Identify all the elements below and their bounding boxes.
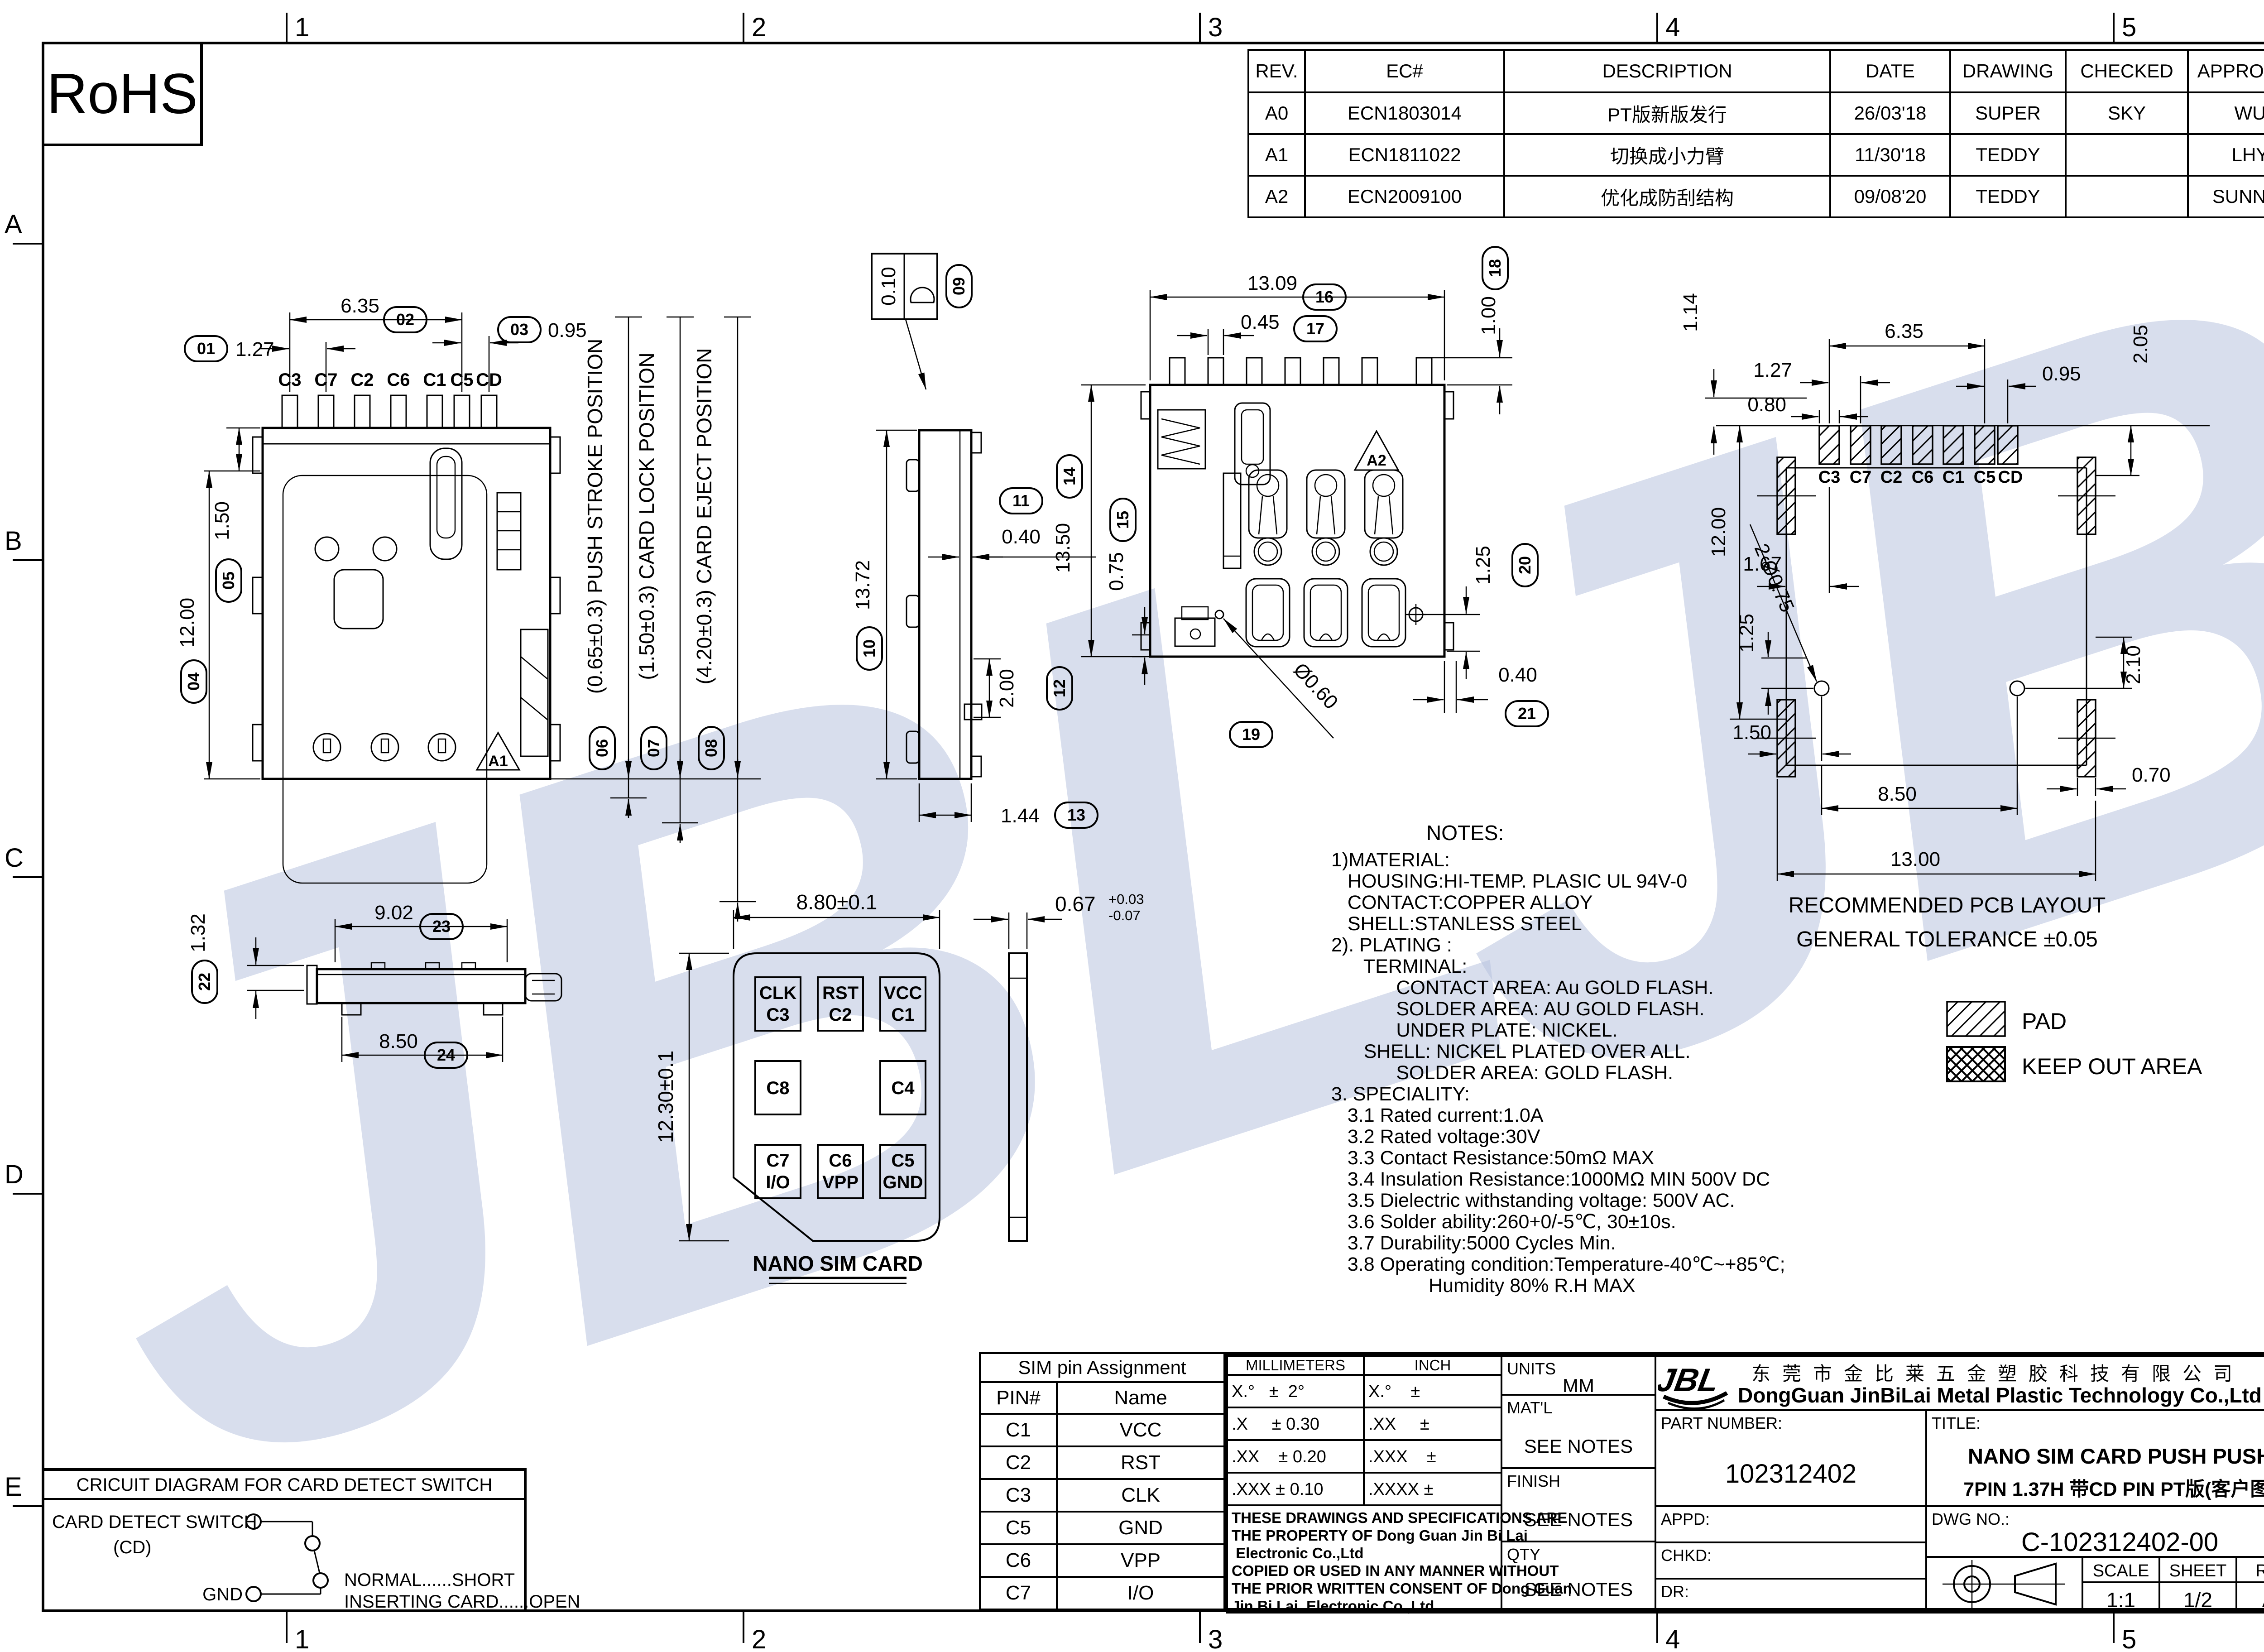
dim-17: 0.45 17 [1177,311,1337,355]
svg-text:RST: RST [822,983,859,1003]
sheet-header: SHEET [2158,1556,2237,1583]
svg-text:09: 09 [950,277,968,295]
sim-pin-table: SIM pin Assignment PIN#Name C1VCC C2RST … [979,1352,1225,1610]
svg-text:C2: C2 [350,370,374,390]
svg-text:VPP: VPP [822,1172,859,1192]
svg-text:C5: C5 [891,1151,914,1171]
svg-text:4: 4 [1665,13,1680,42]
company-cn: 东莞市金比莱五金塑胶科技有限公司 [1751,1359,2244,1386]
units-cell: UNITS MM [1501,1355,1656,1396]
rev-header: APPROVED [2188,50,2264,92]
dim-09: 0.10 09 [872,254,972,389]
svg-text:12.30±0.1: 12.30±0.1 [654,1051,677,1143]
svg-text:17: 17 [1306,319,1324,338]
pin-row: C2RST [980,1446,1224,1479]
rohs-badge: RoHS [43,43,201,145]
svg-text:A2: A2 [1367,452,1386,469]
scale-value: 1:1 [2082,1581,2160,1614]
qty-cell: QTY SEE NOTES [1501,1541,1656,1614]
svg-text:CLK: CLK [759,983,796,1003]
svg-text:8.50: 8.50 [1878,783,1917,805]
svg-text:C4: C4 [891,1078,915,1098]
svg-text:C1: C1 [1943,468,1965,487]
svg-text:C6: C6 [387,370,410,390]
tol-header-inch: INCH [1363,1355,1502,1376]
part-number-cell: PART NUMBER: 102312402 [1655,1409,1927,1507]
svg-text:B: B [5,526,22,556]
svg-text:06: 06 [593,739,611,757]
svg-text:C8: C8 [766,1078,789,1098]
svg-text:I/O: I/O [766,1172,790,1192]
svg-text:1.44: 1.44 [1001,805,1040,827]
svg-text:6.35: 6.35 [1885,320,1923,342]
svg-text:3: 3 [1208,13,1223,42]
svg-text:D: D [5,1160,24,1189]
rev-header: DRAWING [1950,50,2066,92]
svg-text:5: 5 [2122,1625,2136,1652]
pin-row: C6VPP [980,1544,1224,1577]
svg-text:18: 18 [1486,259,1504,277]
svg-text:08: 08 [702,739,720,757]
company-en: DongGuan JinBiLai Metal Plastic Technolo… [1738,1383,2262,1407]
rev-header: CHECKED [2066,50,2188,92]
rev-header: DATE [1830,50,1950,92]
svg-text:11: 11 [1012,491,1030,510]
svg-text:1: 1 [295,1625,309,1652]
svg-text:13.09: 13.09 [1247,272,1297,294]
title-cell: TITLE: NANO SIM CARD PUSH PUSH 7PIN 1.37… [1925,1409,2264,1507]
svg-text:13: 13 [1067,806,1085,824]
svg-text:C7: C7 [766,1151,789,1171]
svg-text:C2: C2 [1880,468,1903,487]
svg-text:C1: C1 [423,370,446,390]
svg-text:12: 12 [1050,679,1069,697]
jbl-logo: JBL [1658,1358,1733,1410]
svg-text:1.25: 1.25 [1472,546,1494,585]
dr-cell: DR: [1655,1578,1927,1614]
projection-cell [1925,1556,2083,1614]
svg-text:8.80±0.1: 8.80±0.1 [796,890,878,914]
svg-text:C2: C2 [829,1005,852,1025]
legend-keepout-label: KEEP OUT AREA [2022,1054,2202,1079]
svg-text:0.10: 0.10 [878,267,900,306]
zone-markers-top: 1 2 3 4 5 [287,13,2136,43]
svg-text:CD: CD [1998,468,2023,487]
svg-text:12.00: 12.00 [176,598,198,648]
pcb-tolerance: GENERAL TOLERANCE ±0.05 [1796,927,2098,951]
svg-text:JBL: JBL [1658,1362,1722,1398]
company-band: JBL 东莞市金比莱五金塑胶科技有限公司 DongGuan JinBiLai M… [1655,1355,2264,1411]
rev-header: DESCRIPTION [1504,50,1830,92]
svg-text:2.10: 2.10 [2122,645,2144,684]
svg-text:1.27: 1.27 [1753,359,1792,381]
rev-value: A2 [2235,1581,2264,1614]
svg-text:C7: C7 [1850,468,1872,487]
svg-text:12.00: 12.00 [1708,507,1730,557]
svg-text:4: 4 [1665,1625,1680,1652]
pin-table-title: SIM pin Assignment [980,1353,1224,1382]
tol-header-mm: MILLIMETERS [1226,1355,1365,1376]
svg-text:INSERTING CARD......OPEN: INSERTING CARD......OPEN [344,1592,580,1612]
svg-text:5: 5 [2122,13,2136,42]
svg-text:(0.65±0.3) PUSH STROKE POSITIO: (0.65±0.3) PUSH STROKE POSITION [583,339,607,694]
pin-row: C1VCC [980,1414,1224,1446]
svg-text:07: 07 [644,739,663,757]
rev-header-cell: REV. [2235,1556,2264,1583]
svg-text:1.27: 1.27 [235,338,274,360]
svg-text:+0.03: +0.03 [1108,891,1144,907]
svg-text:C3: C3 [1818,468,1841,487]
revision-table: REV. EC# DESCRIPTION DATE DRAWING CHECKE… [1247,49,2264,218]
svg-text:13.50: 13.50 [1052,523,1074,573]
svg-text:23: 23 [432,917,451,936]
nano-sim-label: NANO SIM CARD [753,1252,923,1275]
svg-text:03: 03 [510,320,528,339]
pin-row: C5GND [980,1512,1224,1544]
title-block: MILLIMETERS INCH X.° ± 2° X.° ± .X ± 0.3… [1223,1352,2264,1611]
svg-text:0.75: 0.75 [1105,552,1127,591]
svg-text:1.14: 1.14 [1679,293,1702,332]
svg-text:21: 21 [1518,704,1536,723]
svg-text:C: C [5,843,24,873]
svg-text:A: A [5,210,22,239]
chkd-cell: CHKD: [1655,1542,1927,1580]
svg-text:CARD DETECT SWITCH: CARD DETECT SWITCH [52,1512,257,1532]
svg-text:05: 05 [219,571,238,590]
svg-text:3: 3 [1208,1625,1223,1652]
rev-row: A2ECN2009100优化成防刮结构09/08'20TEDDYSUNNLY [1248,176,2264,217]
svg-text:19: 19 [1242,725,1260,744]
scale-header: SCALE [2082,1556,2160,1583]
svg-text:-0.07: -0.07 [1108,908,1141,923]
rohs-label: RoHS [47,62,197,125]
sheet-value: 1/2 [2158,1581,2237,1614]
svg-text:2: 2 [752,13,766,42]
dwg-cell: DWG NO.: C-102312402-00 [1925,1505,2264,1558]
svg-text:9.02: 9.02 [374,902,413,924]
notes-title: NOTES: [1426,821,1785,845]
svg-text:0.95: 0.95 [548,319,587,341]
svg-text:0.45: 0.45 [1241,311,1280,333]
svg-text:02: 02 [396,310,414,329]
svg-text:22: 22 [195,973,214,991]
pin-row: C3CLK [980,1479,1224,1512]
svg-text:1.00: 1.00 [1477,296,1500,335]
zone-markers-bottom: 1 2 3 4 5 [287,1611,2136,1652]
pcb-layout-title: RECOMMENDED PCB LAYOUT [1789,893,2106,917]
svg-text:13.72: 13.72 [852,560,874,610]
svg-text:C1: C1 [891,1005,914,1025]
svg-text:0.67: 0.67 [1055,892,1096,916]
svg-text:(CD): (CD) [113,1537,151,1557]
drawing-sheet: JBL JBL 1 2 3 4 5 1 2 3 4 5 A B C D E A … [0,0,2264,1652]
rev-row: A1ECN1811022切换成小力臂11/30'18TEDDYLHY [1248,134,2264,176]
notes-body: 1)MATERIAL: HOUSING:HI-TEMP. PLASIC UL 9… [1331,850,1785,1297]
svg-text:C6: C6 [829,1151,852,1171]
svg-text:E: E [5,1472,22,1502]
svg-text:1.50: 1.50 [1732,721,1771,744]
svg-text:04: 04 [184,672,203,691]
svg-text:01: 01 [197,339,215,358]
svg-text:15: 15 [1113,511,1132,529]
svg-text:2.05: 2.05 [2130,325,2152,364]
svg-text:14: 14 [1060,467,1079,485]
svg-text:(4.20±0.3) CARD EJECT POSITION: (4.20±0.3) CARD EJECT POSITION [692,348,716,685]
svg-text:10: 10 [860,639,878,658]
rev-row: A0ECN1803014PT版新版发行26/03'18SUPERSKYWU [1248,92,2264,134]
svg-text:0.80: 0.80 [1747,394,1786,416]
svg-text:1.32: 1.32 [187,913,209,952]
pin-row: C7I/O [980,1577,1224,1609]
svg-text:13.00: 13.00 [1890,848,1940,870]
front-pins: C3 C7 C2 C6 C1 C5 CD [278,370,502,428]
rev-header: EC# [1305,50,1504,92]
svg-text:0.40: 0.40 [1002,526,1041,548]
svg-text:0.40: 0.40 [1498,664,1537,686]
svg-text:1.25: 1.25 [1736,614,1758,653]
svg-text:1: 1 [295,13,309,42]
legend-pad-label: PAD [2022,1008,2067,1034]
svg-text:C5: C5 [1974,468,1996,487]
svg-text:6.35: 6.35 [341,295,379,317]
svg-text:24: 24 [437,1046,455,1064]
svg-text:0.95: 0.95 [2042,363,2081,385]
legal-text: THESE DRAWINGS AND SPECIFICATIONS ARE TH… [1226,1504,1502,1614]
svg-text:2.00: 2.00 [996,669,1018,708]
svg-text:2: 2 [752,1625,766,1652]
svg-text:GND: GND [202,1585,243,1604]
svg-text:1.50: 1.50 [211,501,233,540]
svg-text:C6: C6 [1912,468,1934,487]
notes-block: NOTES: 1)MATERIAL: HOUSING:HI-TEMP. PLAS… [1331,821,1785,1297]
svg-text:GND: GND [883,1172,923,1192]
svg-text:A1: A1 [488,753,508,770]
svg-text:VCC: VCC [884,983,922,1003]
matl-cell: MAT'L SEE NOTES [1501,1394,1656,1469]
svg-text:8.50: 8.50 [379,1030,418,1052]
svg-text:0.70: 0.70 [2132,764,2171,786]
appd-cell: APPD: [1655,1505,1927,1543]
circuit-title: CRICUIT DIAGRAM FOR CARD DETECT SWITCH [77,1475,493,1495]
rev-header: REV. [1248,50,1305,92]
svg-text:NORMAL......SHORT: NORMAL......SHORT [344,1570,515,1590]
svg-text:20: 20 [1516,556,1534,574]
svg-text:16: 16 [1315,288,1333,306]
finish-cell: FINISH SEE NOTES [1501,1467,1656,1542]
svg-text:C3: C3 [766,1005,789,1025]
svg-text:(1.50±0.3) CARD LOCK POSITION: (1.50±0.3) CARD LOCK POSITION [635,352,658,680]
